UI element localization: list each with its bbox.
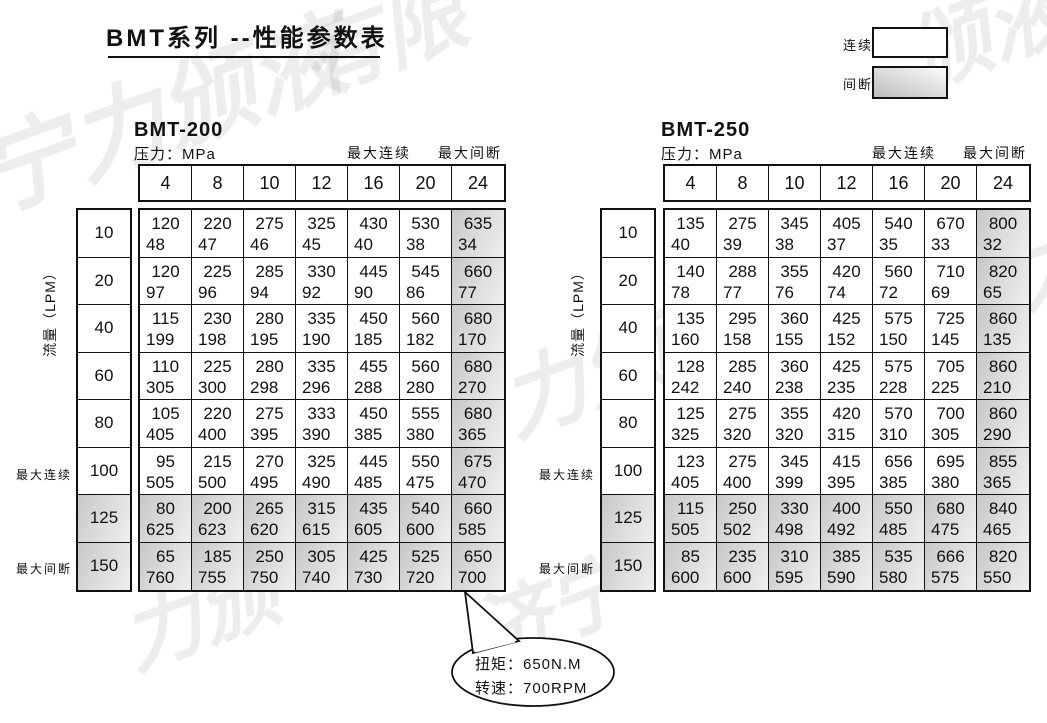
torque-value: 820 (977, 261, 1029, 282)
data-cell: 325490 (296, 448, 348, 496)
data-cell: 725145 (925, 305, 977, 353)
torque-value: 275 (717, 451, 768, 472)
table-bmt250-title: BMT-250 (661, 119, 750, 142)
data-cell: 115505 (665, 495, 717, 543)
speed-value: 740 (296, 567, 347, 588)
speed-value: 48 (140, 234, 191, 255)
speed-value: 580 (873, 567, 924, 588)
speed-value: 590 (821, 567, 872, 588)
torque-value: 425 (348, 546, 399, 567)
speed-value: 495 (244, 472, 295, 493)
speed-value: 490 (296, 472, 347, 493)
torque-value: 430 (348, 213, 399, 234)
table-bmt250-maxint-header: 最大间断 (963, 143, 1027, 163)
flow-header-cell: 40 (78, 305, 130, 353)
speed-value: 505 (665, 519, 716, 540)
data-cell: 680270 (452, 353, 504, 401)
torque-value: 420 (821, 403, 872, 424)
pressure-header-cell: 20 (925, 166, 977, 200)
torque-value: 860 (977, 403, 1029, 424)
pressure-header-cell: 24 (977, 166, 1029, 200)
data-cell: 85600 (665, 543, 717, 591)
torque-value: 285 (244, 261, 295, 282)
torque-value: 355 (769, 261, 820, 282)
torque-value: 140 (665, 261, 716, 282)
torque-value: 445 (348, 261, 399, 282)
legend-intermittent-swatch (872, 66, 948, 99)
data-cell: 65760 (140, 543, 192, 591)
flow-header-cell: 100 (78, 448, 130, 496)
data-cell: 425235 (821, 353, 873, 401)
data-cell: 22047 (192, 210, 244, 258)
flow-header-cell: 40 (602, 305, 654, 353)
torque-value: 420 (821, 261, 872, 282)
torque-value: 280 (244, 356, 295, 377)
torque-value: 128 (665, 356, 716, 377)
speed-value: 69 (925, 282, 976, 303)
torque-value: 315 (296, 498, 347, 519)
torque-value: 275 (244, 213, 295, 234)
data-cell: 105405 (140, 400, 192, 448)
torque-value: 860 (977, 308, 1029, 329)
data-cell: 230198 (192, 305, 244, 353)
speed-value: 46 (244, 234, 295, 255)
speed-value: 90 (348, 282, 399, 303)
speed-value: 45 (296, 234, 347, 255)
speed-value: 320 (717, 424, 768, 445)
torque-value: 660 (452, 261, 504, 282)
speed-value: 96 (192, 282, 243, 303)
table-bmt250-maxcont-header: 最大连续 (872, 143, 936, 163)
pressure-header-cell: 16 (873, 166, 925, 200)
speed-value: 380 (400, 424, 451, 445)
speed-value: 72 (873, 282, 924, 303)
data-cell: 560182 (400, 305, 452, 353)
torque-value: 675 (452, 451, 504, 472)
data-cell: 34538 (769, 210, 821, 258)
data-cell: 385590 (821, 543, 873, 591)
table-bmt250-pressure-row: 481012162024 (663, 164, 1031, 202)
data-cell: 860210 (977, 353, 1029, 401)
torque-value: 120 (140, 213, 191, 234)
speed-value: 400 (192, 424, 243, 445)
data-cell: 855365 (977, 448, 1029, 496)
speed-value: 492 (821, 519, 872, 540)
data-cell: 115199 (140, 305, 192, 353)
data-cell: 27546 (244, 210, 296, 258)
speed-value: 150 (873, 329, 924, 350)
torque-value: 860 (977, 356, 1029, 377)
data-cell: 555380 (400, 400, 452, 448)
torque-value: 560 (873, 261, 924, 282)
data-cell: 185755 (192, 543, 244, 591)
data-cell: 14078 (665, 258, 717, 306)
table-bmt250-flow-column: 1020406080100125150 (600, 208, 656, 592)
speed-value: 505 (140, 472, 191, 493)
data-cell: 270495 (244, 448, 296, 496)
torque-value: 220 (192, 213, 243, 234)
torque-value: 540 (873, 213, 924, 234)
speed-value: 502 (717, 519, 768, 540)
data-cell: 95505 (140, 448, 192, 496)
speed-value: 288 (348, 377, 399, 398)
torque-value: 325 (296, 213, 347, 234)
table-bmt250-pressure-label: 压力：MPa (661, 143, 743, 164)
torque-value: 710 (925, 261, 976, 282)
speed-value: 600 (665, 567, 716, 588)
flow-header-cell: 80 (78, 400, 130, 448)
speed-value: 623 (192, 519, 243, 540)
speed-value: 405 (665, 472, 716, 493)
torque-value: 400 (821, 498, 872, 519)
data-cell: 360155 (769, 305, 821, 353)
data-cell: 123405 (665, 448, 717, 496)
torque-value: 656 (873, 451, 924, 472)
speed-value: 575 (925, 567, 976, 588)
data-cell: 28594 (244, 258, 296, 306)
flow-header-cell: 10 (602, 210, 654, 258)
data-cell: 425730 (348, 543, 400, 591)
data-cell: 660585 (452, 495, 504, 543)
torque-value: 305 (296, 546, 347, 567)
data-cell: 305740 (296, 543, 348, 591)
torque-value: 680 (925, 498, 976, 519)
torque-value: 560 (400, 308, 451, 329)
speed-value: 195 (244, 329, 295, 350)
flow-header-cell: 10 (78, 210, 130, 258)
torque-value: 265 (244, 498, 295, 519)
speed-value: 78 (665, 282, 716, 303)
torque-value: 115 (140, 308, 191, 329)
torque-value: 345 (769, 451, 820, 472)
torque-value: 250 (717, 498, 768, 519)
pressure-header-cell: 12 (296, 166, 348, 200)
data-cell: 56072 (873, 258, 925, 306)
data-cell: 63534 (452, 210, 504, 258)
data-cell: 275395 (244, 400, 296, 448)
torque-value: 125 (665, 403, 716, 424)
speed-value: 300 (192, 377, 243, 398)
table-bmt200-title: BMT-200 (134, 119, 223, 142)
torque-value: 335 (296, 308, 347, 329)
speed-value: 625 (140, 519, 191, 540)
torque-value: 415 (821, 451, 872, 472)
torque-value: 280 (244, 308, 295, 329)
torque-value: 385 (821, 546, 872, 567)
pressure-header-cell: 4 (665, 166, 717, 200)
data-cell: 860135 (977, 305, 1029, 353)
torque-value: 820 (977, 546, 1029, 567)
torque-value: 345 (769, 213, 820, 234)
flow-header-cell: 100 (602, 448, 654, 496)
torque-value: 635 (452, 213, 504, 234)
torque-value: 135 (665, 213, 716, 234)
data-cell: 575150 (873, 305, 925, 353)
speed-value: 730 (348, 567, 399, 588)
torque-value: 95 (140, 451, 191, 472)
speed-value: 595 (769, 567, 820, 588)
data-cell: 250502 (717, 495, 769, 543)
data-cell: 27539 (717, 210, 769, 258)
data-cell: 54035 (873, 210, 925, 258)
torque-value: 405 (821, 213, 872, 234)
speed-value: 77 (717, 282, 768, 303)
flow-header-cell: 125 (602, 495, 654, 543)
torque-value: 855 (977, 451, 1029, 472)
data-cell: 315615 (296, 495, 348, 543)
speed-value: 92 (296, 282, 347, 303)
torque-value: 200 (192, 498, 243, 519)
speed-value: 145 (925, 329, 976, 350)
title-underline (108, 56, 380, 58)
data-cell: 360238 (769, 353, 821, 401)
data-cell: 860290 (977, 400, 1029, 448)
data-cell: 355320 (769, 400, 821, 448)
data-cell: 215500 (192, 448, 244, 496)
data-cell: 695380 (925, 448, 977, 496)
torque-value: 666 (925, 546, 976, 567)
flow-header-cell: 60 (602, 353, 654, 401)
speed-value: 190 (296, 329, 347, 350)
torque-value: 215 (192, 451, 243, 472)
flow-header-cell: 20 (78, 258, 130, 306)
speed-value: 210 (977, 377, 1029, 398)
speed-value: 158 (717, 329, 768, 350)
speed-value: 380 (925, 472, 976, 493)
data-cell: 71069 (925, 258, 977, 306)
pressure-header-cell: 16 (348, 166, 400, 200)
data-cell: 125325 (665, 400, 717, 448)
torque-value: 575 (873, 356, 924, 377)
speed-value: 550 (977, 567, 1029, 588)
data-cell: 110305 (140, 353, 192, 401)
speed-value: 305 (140, 377, 191, 398)
pressure-header-cell: 24 (452, 166, 504, 200)
data-cell: 680475 (925, 495, 977, 543)
speed-value: 615 (296, 519, 347, 540)
callout-speed-text: 转速：700RPM (475, 680, 587, 697)
torque-value: 330 (769, 498, 820, 519)
speed-value: 755 (192, 567, 243, 588)
speed-value: 35 (873, 234, 924, 255)
torque-value: 800 (977, 213, 1029, 234)
speed-value: 77 (452, 282, 504, 303)
speed-value: 320 (769, 424, 820, 445)
torque-value: 550 (873, 498, 924, 519)
speed-value: 365 (977, 472, 1029, 493)
data-cell: 67033 (925, 210, 977, 258)
table-bmt200-flow-axis-label: 流量（LPM） (40, 231, 60, 391)
data-cell: 310595 (769, 543, 821, 591)
torque-value: 435 (348, 498, 399, 519)
torque-value: 545 (400, 261, 451, 282)
data-cell: 435605 (348, 495, 400, 543)
speed-value: 315 (821, 424, 872, 445)
data-cell: 43040 (348, 210, 400, 258)
speed-value: 310 (873, 424, 924, 445)
speed-value: 185 (348, 329, 399, 350)
data-cell: 450185 (348, 305, 400, 353)
data-cell: 285240 (717, 353, 769, 401)
torque-value: 680 (452, 403, 504, 424)
data-cell: 275400 (717, 448, 769, 496)
torque-value: 540 (400, 498, 451, 519)
speed-value: 39 (717, 234, 768, 255)
torque-value: 110 (140, 356, 191, 377)
data-cell: 80032 (977, 210, 1029, 258)
data-cell: 535580 (873, 543, 925, 591)
torque-value: 325 (296, 451, 347, 472)
data-cell: 425152 (821, 305, 873, 353)
data-cell: 80625 (140, 495, 192, 543)
speed-value: 32 (977, 234, 1029, 255)
speed-value: 240 (717, 377, 768, 398)
data-cell: 54586 (400, 258, 452, 306)
speed-value: 390 (296, 424, 347, 445)
speed-value: 38 (769, 234, 820, 255)
torque-value: 670 (925, 213, 976, 234)
torque-value: 455 (348, 356, 399, 377)
torque-value: 575 (873, 308, 924, 329)
speed-value: 34 (452, 234, 504, 255)
speed-value: 33 (925, 234, 976, 255)
data-cell: 66077 (452, 258, 504, 306)
flow-header-cell: 60 (78, 353, 130, 401)
torque-value: 450 (348, 403, 399, 424)
torque-value: 555 (400, 403, 451, 424)
torque-value: 235 (717, 546, 768, 567)
speed-value: 225 (925, 377, 976, 398)
torque-value: 123 (665, 451, 716, 472)
table-bmt250-flow-axis-label: 流量（LPM） (568, 231, 588, 391)
speed-value: 498 (769, 519, 820, 540)
speed-value: 235 (821, 377, 872, 398)
data-cell: 335296 (296, 353, 348, 401)
data-cell: 295158 (717, 305, 769, 353)
data-cell: 35576 (769, 258, 821, 306)
table-bmt200-maxint-side-label: 最大间断 (2, 560, 72, 577)
data-cell: 12048 (140, 210, 192, 258)
torque-value: 288 (717, 261, 768, 282)
data-cell: 265620 (244, 495, 296, 543)
data-cell: 675470 (452, 448, 504, 496)
speed-value: 750 (244, 567, 295, 588)
torque-value: 360 (769, 308, 820, 329)
torque-value: 230 (192, 308, 243, 329)
data-cell: 400492 (821, 495, 873, 543)
torque-value: 840 (977, 498, 1029, 519)
pressure-header-cell: 12 (821, 166, 873, 200)
torque-value: 650 (452, 546, 504, 567)
data-cell: 330498 (769, 495, 821, 543)
speed-value: 620 (244, 519, 295, 540)
torque-value: 105 (140, 403, 191, 424)
data-cell: 235600 (717, 543, 769, 591)
speed-value: 155 (769, 329, 820, 350)
data-cell: 82065 (977, 258, 1029, 306)
speed-value: 74 (821, 282, 872, 303)
torque-value: 525 (400, 546, 451, 567)
pressure-header-cell: 10 (244, 166, 296, 200)
torque-value: 115 (665, 498, 716, 519)
speed-value: 94 (244, 282, 295, 303)
data-cell: 33092 (296, 258, 348, 306)
speed-value: 199 (140, 329, 191, 350)
flow-header-cell: 80 (602, 400, 654, 448)
torque-value: 725 (925, 308, 976, 329)
data-cell: 820550 (977, 543, 1029, 591)
speed-value: 405 (140, 424, 191, 445)
data-cell: 12097 (140, 258, 192, 306)
torque-value: 535 (873, 546, 924, 567)
data-cell: 560280 (400, 353, 452, 401)
legend-intermittent-label: 间断 (843, 74, 873, 93)
table-bmt200-data-grid: 1204822047275463254543040530386353412097… (138, 208, 506, 592)
torque-value: 185 (192, 546, 243, 567)
speed-value: 400 (717, 472, 768, 493)
speed-value: 395 (244, 424, 295, 445)
data-cell: 13540 (665, 210, 717, 258)
pressure-header-cell: 8 (717, 166, 769, 200)
data-cell: 44590 (348, 258, 400, 306)
data-cell: 128242 (665, 353, 717, 401)
torque-value: 680 (452, 308, 504, 329)
speed-value: 65 (977, 282, 1029, 303)
table-bmt200-maxint-header: 最大间断 (438, 143, 502, 163)
pressure-header-cell: 4 (140, 166, 192, 200)
data-cell: 32545 (296, 210, 348, 258)
speed-value: 40 (665, 234, 716, 255)
torque-value: 660 (452, 498, 504, 519)
data-cell: 550475 (400, 448, 452, 496)
speed-value: 238 (769, 377, 820, 398)
data-cell: 450385 (348, 400, 400, 448)
data-cell: 28877 (717, 258, 769, 306)
speed-value: 86 (400, 282, 451, 303)
pressure-header-cell: 10 (769, 166, 821, 200)
torque-value: 270 (244, 451, 295, 472)
data-cell: 280195 (244, 305, 296, 353)
data-cell: 680170 (452, 305, 504, 353)
torque-value: 120 (140, 261, 191, 282)
torque-value: 310 (769, 546, 820, 567)
callout-torque-text: 扭矩：650N.M (475, 656, 582, 673)
data-cell: 705225 (925, 353, 977, 401)
torque-value: 275 (717, 213, 768, 234)
data-cell: 540600 (400, 495, 452, 543)
torque-value: 445 (348, 451, 399, 472)
data-cell: 415395 (821, 448, 873, 496)
speed-value: 485 (873, 519, 924, 540)
speed-value: 40 (348, 234, 399, 255)
data-cell: 455288 (348, 353, 400, 401)
table-bmt200-pressure-label: 压力：MPa (134, 143, 216, 164)
torque-value: 530 (400, 213, 451, 234)
torque-value: 220 (192, 403, 243, 424)
torque-value: 225 (192, 356, 243, 377)
table-bmt200-maxcont-header: 最大连续 (347, 143, 411, 163)
data-cell: 275320 (717, 400, 769, 448)
speed-value: 76 (769, 282, 820, 303)
torque-value: 695 (925, 451, 976, 472)
torque-value: 135 (665, 308, 716, 329)
flow-header-cell: 125 (78, 495, 130, 543)
speed-value: 465 (977, 519, 1029, 540)
data-cell: 333390 (296, 400, 348, 448)
speed-value: 47 (192, 234, 243, 255)
data-cell: 550485 (873, 495, 925, 543)
torque-value: 355 (769, 403, 820, 424)
